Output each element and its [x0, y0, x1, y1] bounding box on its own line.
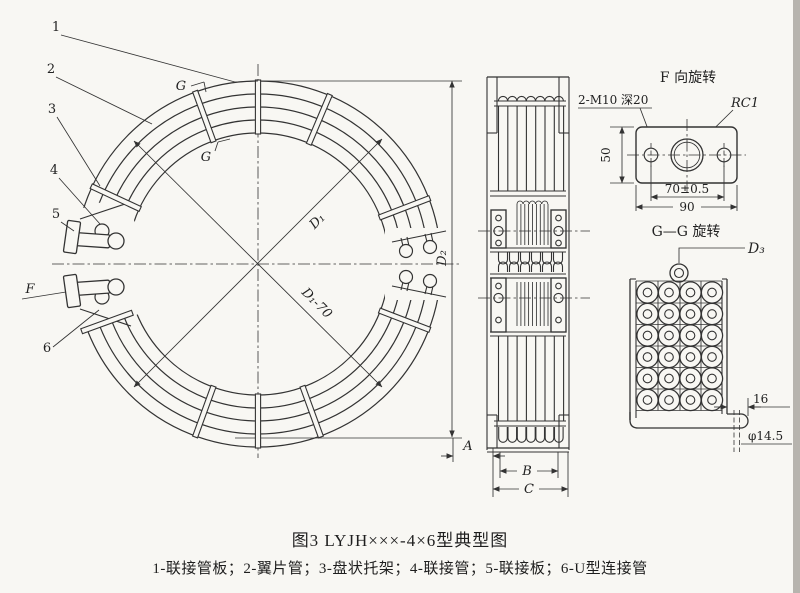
dim-label-b: B [521, 464, 532, 479]
detail-f-view: F 向旋转 2-M10 深20 RC1 50 70±0.5 90 [578, 70, 759, 214]
bolt-plate-right [551, 278, 566, 332]
dim-label-d1-70: D₁-70 [298, 285, 335, 322]
upper-joint [478, 191, 590, 264]
side-elevation-view: A B C [441, 77, 590, 497]
figure-title: 图3 LYJH×××-4×6型典型图 [0, 526, 800, 551]
engineering-drawing: D₁ D₁-70 D₂ [0, 0, 800, 593]
bracket-bar [193, 90, 216, 143]
dim-label-c: C [524, 482, 534, 497]
bolt-plate-left [491, 278, 506, 332]
bracket-bar [255, 394, 260, 448]
leader-1 [61, 35, 258, 82]
figure-parts-legend: 1-联接管板；2-翼片管；3-盘状托架；4-联接管；5-联接板；6-U型连接管 [0, 557, 800, 578]
bracket-bar [255, 80, 260, 134]
rc-note: RC1 [730, 96, 759, 111]
dim-label-90: 90 [679, 200, 694, 214]
part-label-3: 3 [48, 102, 56, 117]
thread-note: 2-M10 深20 [578, 93, 648, 107]
part-label-1: 1 [52, 20, 60, 35]
dim-label-a: A [462, 439, 472, 454]
figure-page: D₁ D₁-70 D₂ [0, 0, 800, 593]
plan-view-coil: D₁ D₁-70 D₂ [22, 20, 462, 458]
dim-label-70: 70±0.5 [665, 182, 709, 196]
dim-label-d1: D₁ [306, 211, 328, 233]
bracket-bar [193, 385, 216, 438]
lower-joint [478, 262, 590, 336]
part-label-4: 4 [50, 163, 58, 178]
detail-f-title: F 向旋转 [660, 70, 716, 86]
connecting-pipe [76, 233, 111, 248]
dim-label-d3: D₃ [747, 241, 765, 257]
dim-label-50: 50 [599, 147, 613, 162]
dim-label-d2: D₂ [435, 250, 450, 267]
dim-label-hole-dia: φ14.5 [748, 429, 783, 443]
detail-gg-title: G—G 旋转 [652, 224, 721, 240]
connecting-pipe [76, 280, 111, 295]
view-arrow-label-f: F [24, 282, 35, 297]
section-label-g-bottom: G [201, 150, 211, 165]
part-label-5: 5 [52, 207, 60, 222]
dim-label-16: 16 [753, 392, 768, 406]
finned-tubes-upper [499, 106, 564, 191]
leader-2 [56, 77, 152, 124]
part-label-2: 2 [47, 62, 55, 77]
leader-3 [57, 117, 100, 186]
bracket-bar [300, 385, 323, 438]
leader-d3 [679, 248, 745, 263]
top-bolt [670, 264, 688, 282]
part-label-6: 6 [43, 341, 51, 356]
bracket-foot [630, 412, 748, 428]
dims-abc: A B C [441, 438, 568, 497]
detail-gg-view: G—G 旋转 D₃ [630, 224, 792, 452]
finned-tubes-lower [499, 336, 564, 421]
section-label-g-top: G [176, 79, 186, 94]
bracket-bar [306, 94, 332, 146]
